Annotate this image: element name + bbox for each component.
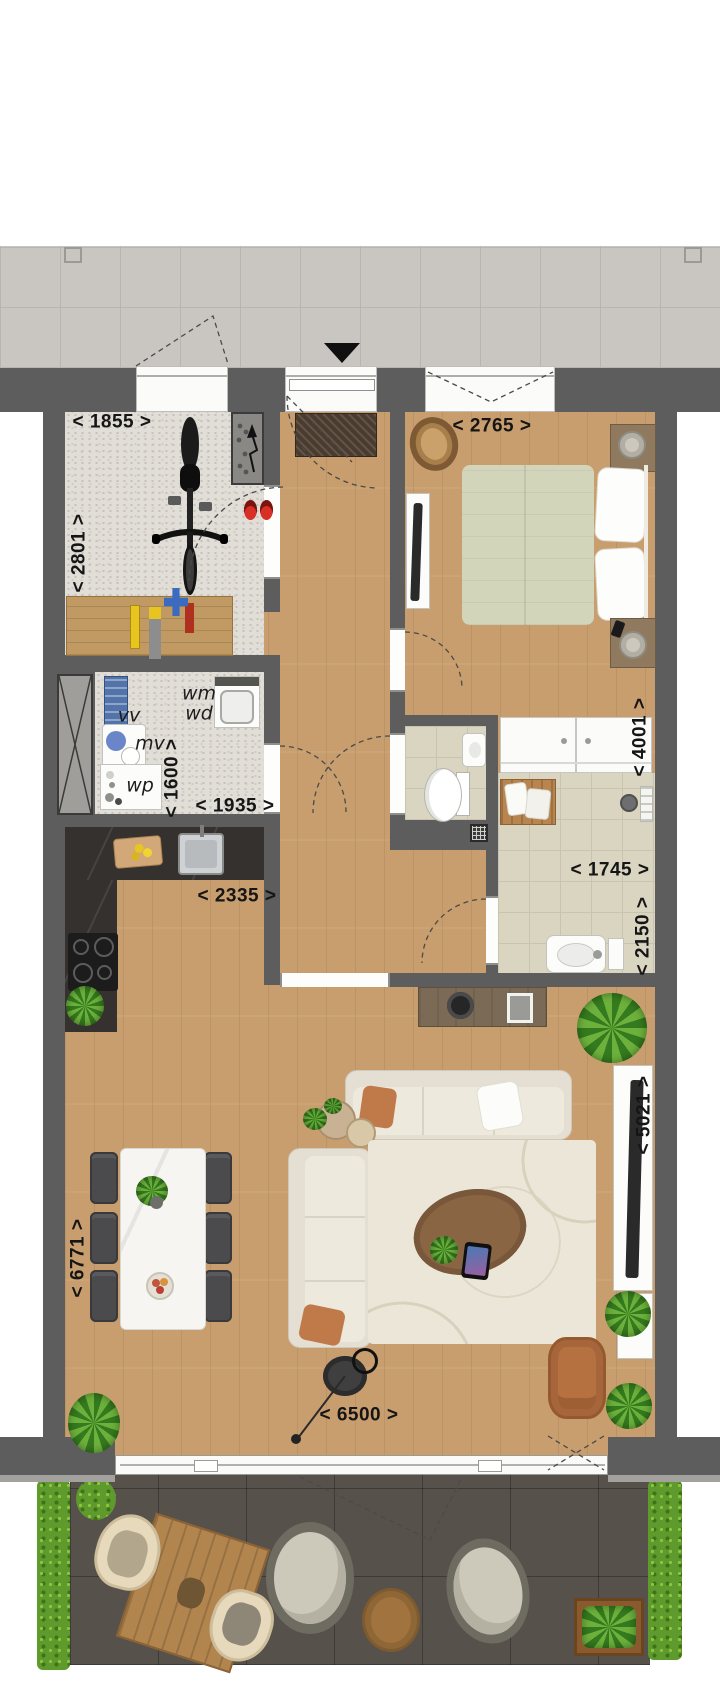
floor-plan: < 1855 > < 2801 > < 2765 > < 4001 > < 16… xyxy=(0,0,720,1689)
door-swing-arcs xyxy=(0,0,720,1689)
